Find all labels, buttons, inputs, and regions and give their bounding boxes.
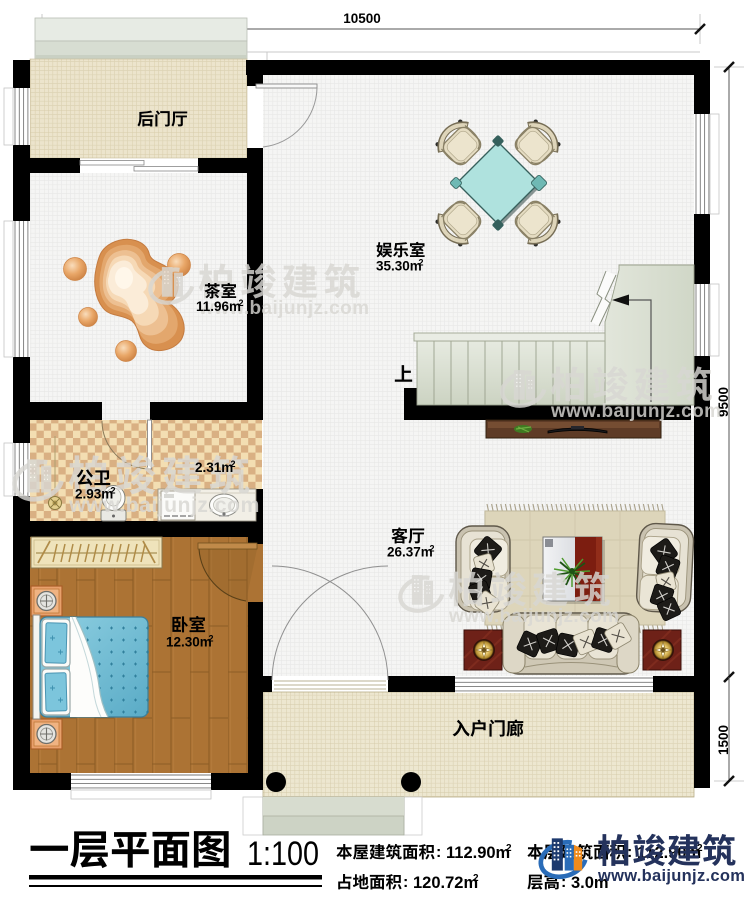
svg-text:www.baijunjz.com: www.baijunjz.com — [550, 401, 721, 422]
svg-text:11.96m: 11.96m — [196, 299, 241, 314]
svg-text:2: 2 — [111, 486, 116, 496]
svg-text:1500: 1500 — [716, 725, 731, 755]
svg-text:www.baijunjz.com: www.baijunjz.com — [597, 867, 745, 885]
svg-text:35.30m: 35.30m — [376, 259, 422, 274]
svg-text:1:100: 1:100 — [247, 835, 319, 873]
svg-text:2: 2 — [430, 544, 435, 554]
svg-text:12.30m: 12.30m — [166, 635, 212, 650]
svg-text:2: 2 — [506, 843, 512, 854]
svg-text:10500: 10500 — [343, 11, 381, 26]
svg-text:2: 2 — [231, 459, 236, 469]
svg-text:2: 2 — [239, 298, 244, 308]
svg-text:112.90m: 112.90m — [446, 844, 510, 862]
svg-text:2: 2 — [473, 873, 479, 884]
svg-text:2: 2 — [209, 634, 214, 644]
svg-text::: : — [403, 874, 408, 891]
svg-text::: : — [436, 844, 441, 861]
svg-text:2.93m: 2.93m — [75, 487, 113, 502]
svg-text:www.baijunjz.com: www.baijunjz.com — [448, 606, 619, 627]
svg-text:120.72m: 120.72m — [413, 874, 478, 892]
svg-text:2: 2 — [419, 258, 424, 268]
svg-text:26.37m: 26.37m — [387, 545, 433, 560]
svg-text:2.31m: 2.31m — [195, 460, 233, 475]
svg-text:2: 2 — [697, 843, 703, 854]
